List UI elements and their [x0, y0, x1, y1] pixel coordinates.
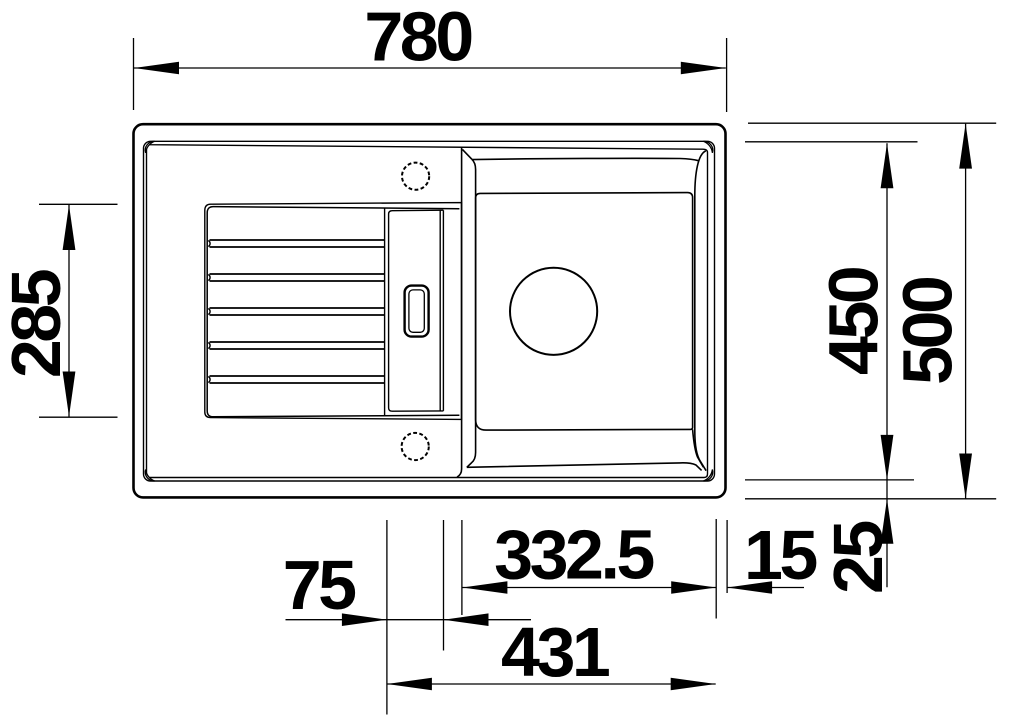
- svg-text:285: 285: [0, 270, 75, 378]
- svg-text:431: 431: [501, 613, 609, 691]
- svg-text:15: 15: [744, 516, 816, 594]
- svg-text:500: 500: [888, 277, 966, 385]
- svg-text:75: 75: [283, 546, 355, 624]
- svg-text:780: 780: [364, 0, 472, 75]
- svg-text:332.5: 332.5: [494, 515, 653, 593]
- svg-text:450: 450: [815, 267, 893, 375]
- svg-text:25: 25: [819, 522, 897, 594]
